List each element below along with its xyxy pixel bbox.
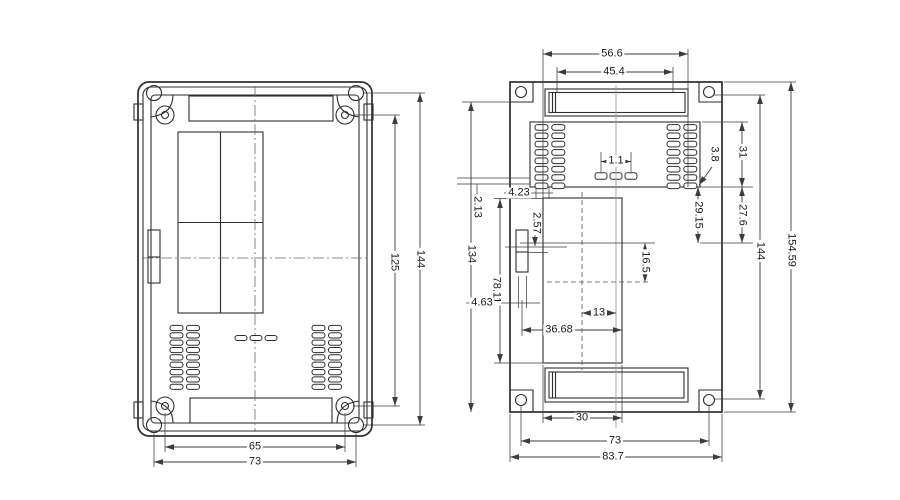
bottom-slot [190, 398, 332, 423]
dim-label-65: 65 [247, 442, 263, 453]
dim-label-13: 13 [591, 308, 607, 319]
dim-label-30: 30 [574, 413, 590, 424]
corner-hole [349, 86, 364, 101]
dim-label-4-23: 4.23 [506, 188, 531, 199]
dim-label-36-68: 36.68 [543, 325, 575, 336]
dim-label-16-5: 16.5 [640, 249, 651, 274]
vent-grid-right [312, 325, 342, 389]
bottom-connector [545, 368, 688, 402]
top-connector [545, 89, 688, 116]
top-slot [189, 96, 333, 121]
dim-label-31: 31 [737, 144, 748, 160]
mount-hole [704, 87, 715, 98]
dim-label-125: 125 [389, 251, 400, 273]
pad-column-left [535, 125, 565, 189]
board-window [543, 198, 622, 363]
dim-label-144-left-view: 144 [415, 248, 426, 270]
dim-label-154-59: 154.59 [786, 231, 797, 269]
dim-label-3-8: 3.8 [709, 144, 720, 163]
mount-hole [516, 395, 527, 406]
vent-grid-left [170, 325, 200, 389]
dim-label-56-6: 56.6 [599, 49, 624, 60]
dim-label-4-63: 4.63 [469, 298, 494, 309]
dim-label-2-57: 2.57 [531, 210, 542, 235]
pad-column-right [667, 125, 697, 189]
technical-drawing: 65 73 125 144 56.6 45.4 1.1 4.23 2.13 13… [0, 0, 900, 500]
dim-label-29-15: 29.15 [693, 199, 704, 231]
dim-label-1-1: 1.1 [606, 156, 625, 167]
right-view-board [457, 49, 796, 462]
board-side-clip [516, 230, 528, 272]
corner-hole [147, 418, 162, 433]
dim-label-83-7: 83.7 [600, 452, 625, 463]
corner-hole [349, 418, 364, 433]
dim-label-73-right-view: 73 [607, 436, 623, 447]
dim-label-45-4: 45.4 [601, 67, 626, 78]
dim-label-27-6: 27.6 [737, 202, 748, 227]
corner-hole [147, 86, 162, 101]
dim-label-134: 134 [466, 243, 477, 265]
mount-hole [704, 395, 715, 406]
center-vent-slots [235, 336, 277, 341]
left-view-enclosure [134, 82, 425, 467]
dim-label-144-right-view: 144 [755, 240, 766, 262]
dim-label-73-left-view: 73 [247, 457, 263, 468]
dim-label-2-13: 2.13 [472, 194, 483, 219]
mount-hole [516, 87, 527, 98]
